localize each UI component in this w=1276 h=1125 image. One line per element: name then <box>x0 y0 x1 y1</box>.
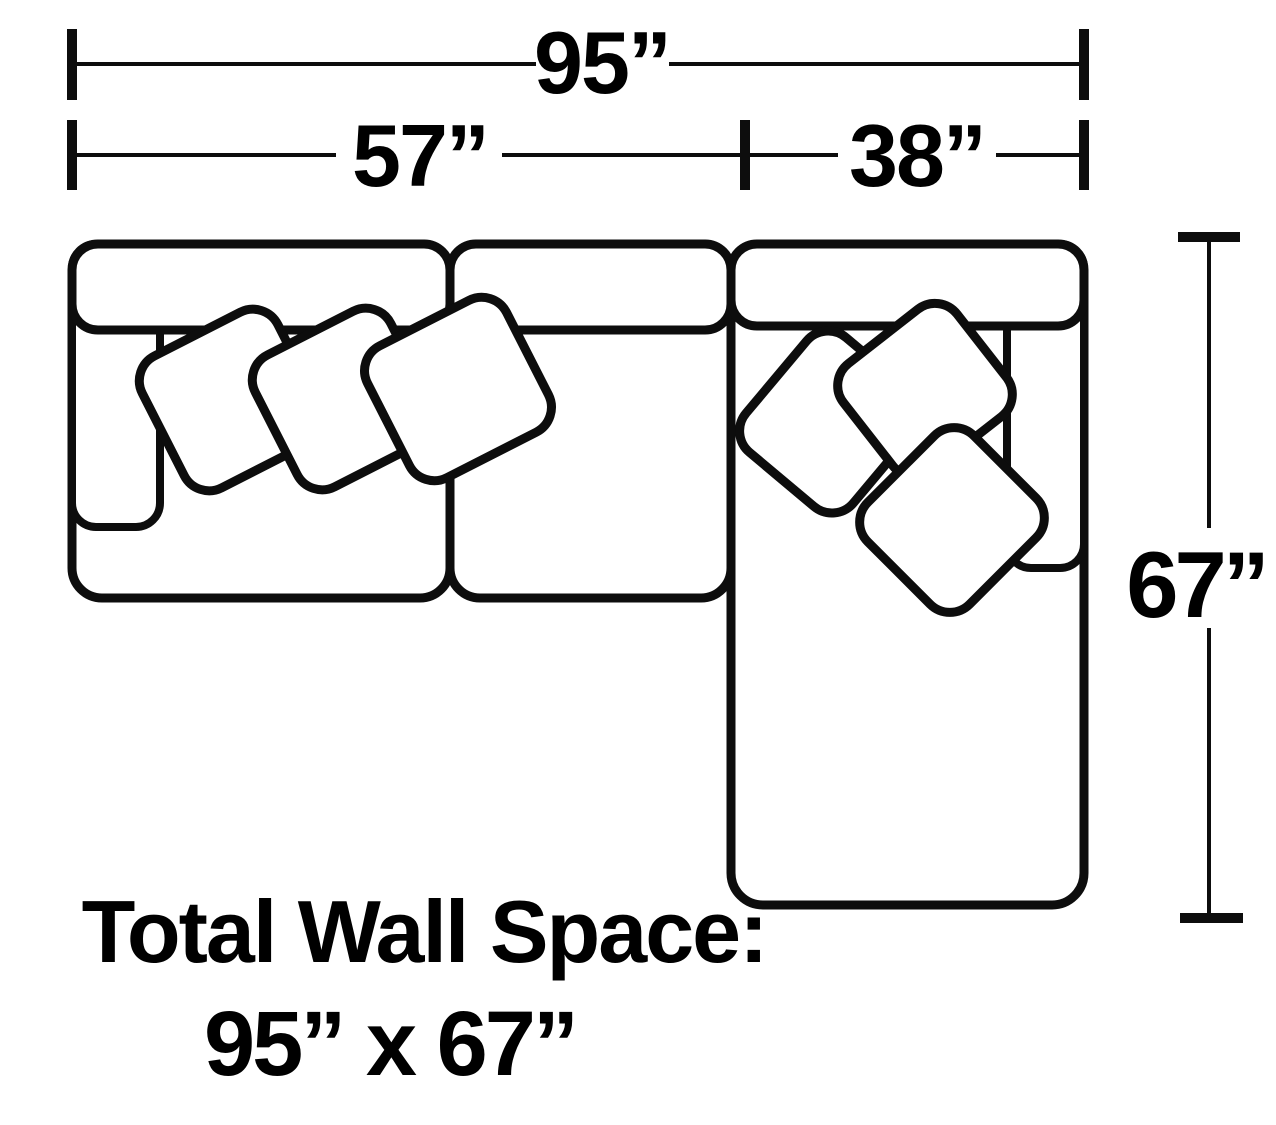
dimension-sofa-width: 57” <box>72 106 745 205</box>
sectional-sofa-outline <box>72 244 1084 905</box>
dimension-chaise-width: 38” <box>750 106 1084 205</box>
dimension-total-depth: 67” <box>1126 237 1266 918</box>
caption-line1: Total Wall Space: <box>82 882 767 981</box>
chaise-width-label: 38” <box>849 106 985 205</box>
total-depth-label: 67” <box>1126 532 1266 637</box>
total-width-label: 95” <box>534 13 670 112</box>
caption: Total Wall Space: 95” x 67” <box>82 882 767 1095</box>
sectional-dimension-diagram: 95” 57” 38” 67” <box>0 0 1276 1125</box>
dimension-total-width: 95” <box>72 13 1084 112</box>
sofa-width-label: 57” <box>352 106 488 205</box>
caption-line2: 95” x 67” <box>204 993 576 1095</box>
sectional-diagram-canvas: 95” 57” 38” 67” <box>0 0 1276 1125</box>
